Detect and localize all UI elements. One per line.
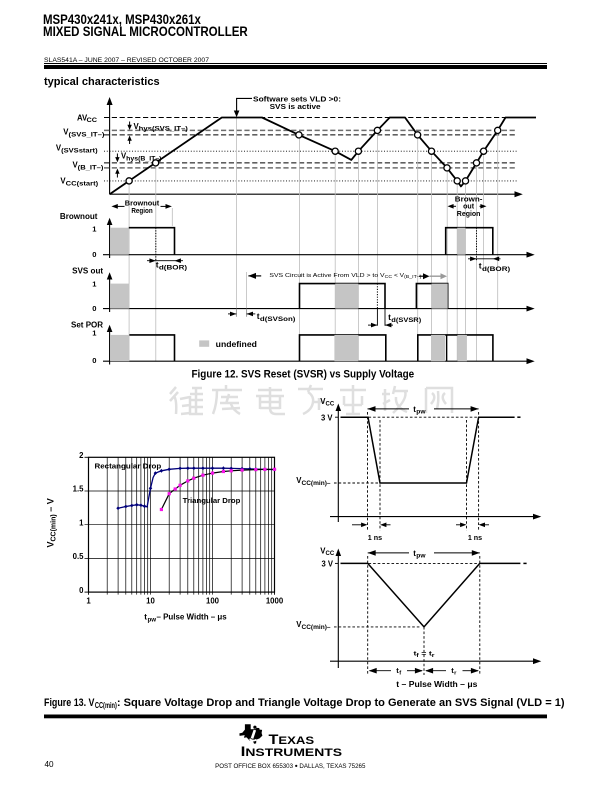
svg-text:INSTRUMENTS: INSTRUMENTS — [241, 744, 343, 759]
svg-text:pw: pw — [416, 553, 425, 560]
svg-text:CC(min): CC(min) — [95, 701, 117, 710]
svg-text:1.5: 1.5 — [73, 485, 85, 494]
svg-text:f: f — [399, 671, 401, 677]
svg-text:pw: pw — [148, 616, 157, 623]
svg-text:POST OFFICE BOX 655303 • DALLA: POST OFFICE BOX 655303 • DALLAS, TEXAS 7… — [215, 761, 366, 771]
svg-text:hys(B_IT–): hys(B_IT–) — [126, 156, 161, 162]
svg-text:0: 0 — [79, 586, 84, 595]
svg-text:SVS out: SVS out — [72, 266, 103, 275]
svg-text:CC: CC — [326, 402, 335, 408]
svg-text:Region: Region — [457, 209, 481, 218]
svg-text:1 ns: 1 ns — [368, 533, 382, 542]
svg-text:0: 0 — [92, 356, 96, 365]
svg-text:1000: 1000 — [266, 597, 284, 606]
svg-text:CC(min)–: CC(min)– — [302, 625, 332, 631]
svg-text:Figure 13. V: Figure 13. V — [44, 697, 95, 709]
svg-text:d(BOR): d(BOR) — [159, 264, 187, 271]
svg-text:3 V: 3 V — [322, 559, 334, 568]
svg-text:100: 100 — [206, 597, 220, 606]
svg-text:TEXAS: TEXAS — [269, 732, 315, 747]
svg-text:d(BOR): d(BOR) — [482, 266, 510, 273]
svg-text:0: 0 — [92, 250, 96, 259]
svg-text:d(SVSR): d(SVSR) — [391, 317, 421, 324]
svg-text:SVS Circuit is Active From VLD: SVS Circuit is Active From VLD > to VCC … — [269, 273, 422, 279]
svg-text:hys(SVS_IT–): hys(SVS_IT–) — [139, 127, 188, 133]
svg-text:0: 0 — [92, 304, 96, 313]
svg-text:Rectangular Drop: Rectangular Drop — [95, 462, 162, 471]
svg-text:1: 1 — [86, 597, 91, 606]
svg-text:CC(start): CC(start) — [66, 182, 99, 188]
svg-text:: Square Voltage Drop and Tria: : Square Voltage Drop and Triangle Volta… — [117, 697, 565, 709]
svg-text:tf = tr: tf = tr — [414, 651, 435, 659]
svg-text:Figure 12. SVS Reset (SVSR) vs: Figure 12. SVS Reset (SVSR) vs Supply Vo… — [192, 368, 415, 380]
svg-text:3 V: 3 V — [321, 413, 333, 422]
svg-text:10: 10 — [146, 597, 155, 606]
svg-text:Brownout: Brownout — [60, 212, 98, 221]
svg-text:40: 40 — [45, 760, 55, 769]
svg-text:(SVS_IT–): (SVS_IT–) — [69, 132, 105, 138]
svg-text:CC(min)–: CC(min)– — [302, 481, 332, 487]
svg-text:undefined: undefined — [216, 340, 257, 349]
svg-text:0.5: 0.5 — [73, 552, 85, 561]
svg-text:(B_IT–): (B_IT–) — [78, 165, 104, 171]
svg-text:Set POR: Set POR — [71, 321, 103, 330]
svg-text:1: 1 — [92, 280, 97, 289]
svg-text:t – Pulse Width – μs: t – Pulse Width – μs — [396, 680, 478, 689]
svg-text:CC: CC — [326, 551, 335, 557]
svg-text:– Pulse Width – μs: – Pulse Width – μs — [157, 613, 228, 622]
svg-text:(SVSstart): (SVSstart) — [61, 149, 98, 155]
svg-text:2: 2 — [79, 451, 84, 460]
svg-text:Triangular Drop: Triangular Drop — [183, 496, 241, 505]
svg-text:Region: Region — [131, 206, 153, 215]
svg-text:d(SVSon): d(SVSon) — [260, 316, 296, 323]
svg-text:pw: pw — [416, 409, 425, 416]
svg-text:SVS is active: SVS is active — [270, 102, 321, 111]
svg-text:r: r — [454, 671, 457, 677]
svg-text:CC: CC — [87, 118, 98, 124]
svg-text:VCC(min) – V: VCC(min) – V — [46, 498, 58, 547]
svg-text:1: 1 — [79, 518, 84, 527]
svg-text:1 ns: 1 ns — [468, 533, 482, 542]
svg-text:1: 1 — [92, 224, 97, 233]
